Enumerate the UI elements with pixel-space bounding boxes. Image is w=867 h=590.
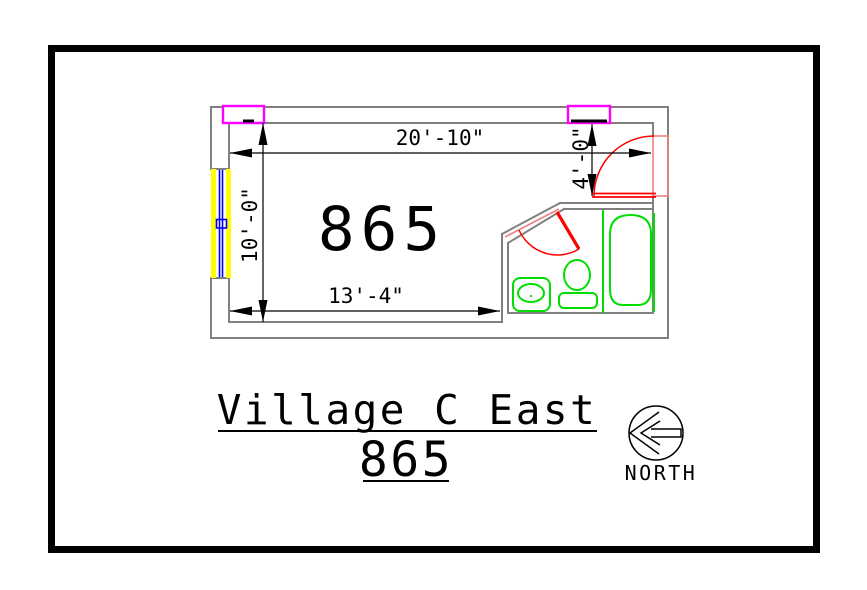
entry-door-frame	[653, 136, 668, 196]
title-block: Village C East 865	[217, 386, 598, 488]
window-glazing-lines	[220, 170, 223, 277]
floor-plan-canvas: 20'-10" 10'-0" 13'-4" 4'-0" 865 Village …	[0, 0, 867, 590]
dimension-arrow-right	[478, 307, 500, 316]
north-arrow-inner-chevron	[641, 421, 660, 445]
sink-basin	[518, 284, 544, 302]
north-label: NORTH	[625, 461, 698, 485]
bathroom-door-leaf	[557, 212, 579, 249]
bathroom-fixtures	[513, 210, 654, 313]
toilet-tank	[559, 293, 597, 308]
drawing-subtitle: 865	[359, 432, 453, 488]
dimension-label-entry-width: 4'-0"	[569, 126, 593, 189]
north-arrow-outer-chevron	[630, 412, 659, 454]
window	[211, 169, 231, 278]
dimension-arrow-right	[629, 149, 651, 158]
window-units	[223, 106, 610, 123]
bathtub	[610, 215, 651, 305]
entry-door	[592, 136, 668, 197]
entry-door-leaf	[592, 194, 656, 198]
dimension-arrow-up	[259, 123, 268, 145]
drawing-sheet: 20'-10" 10'-0" 13'-4" 4'-0" 865 Village …	[0, 0, 867, 590]
dimension-entry-width: 4'-0"	[569, 124, 597, 196]
bathroom-wall-left	[502, 234, 508, 322]
window-frame-outer	[211, 169, 216, 278]
sink-drain-dot	[530, 295, 532, 297]
north-arrow-shaft	[651, 429, 681, 437]
north-arrow: NORTH	[625, 406, 698, 485]
dimension-bottom-width: 13'-4"	[230, 284, 500, 316]
dimension-label-bottom-width: 13'-4"	[328, 284, 404, 308]
drawing-title: Village C East	[217, 386, 598, 434]
dimension-label-room-depth: 10'-0"	[238, 187, 262, 263]
dimension-arrow-left	[230, 149, 252, 158]
bathroom-wall-top	[560, 203, 653, 209]
entry-door-swing-arc	[594, 136, 654, 196]
toilet-bowl	[564, 260, 590, 290]
dimension-label-room-width: 20'-10"	[396, 126, 485, 150]
bathroom-door	[505, 209, 579, 255]
dimension-arrow-left	[230, 307, 252, 316]
bathroom-door-frame	[505, 209, 559, 237]
room-number: 865	[318, 194, 446, 265]
window-latch	[217, 220, 227, 229]
